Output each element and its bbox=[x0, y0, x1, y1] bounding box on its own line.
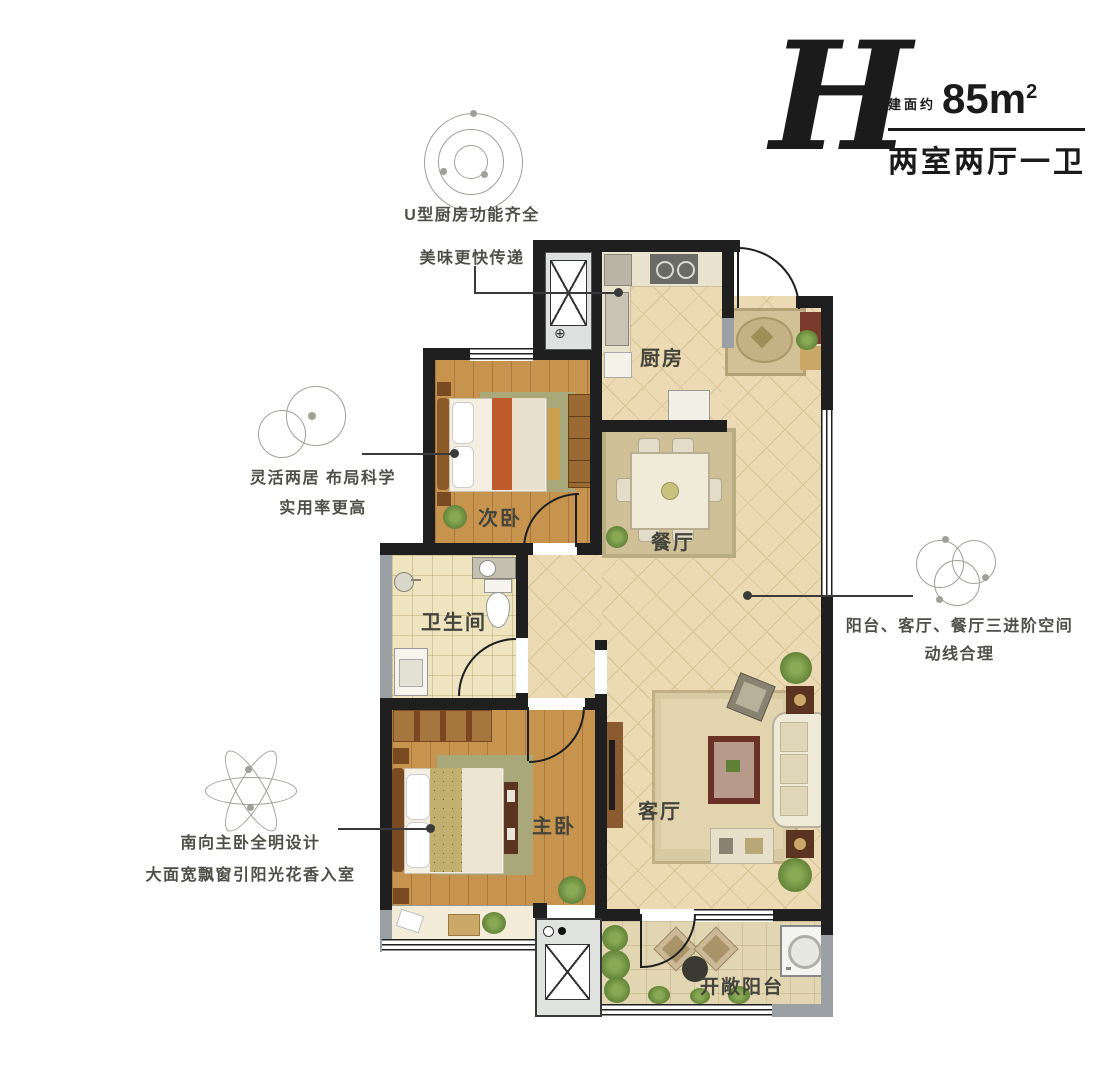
balcony-plant bbox=[600, 950, 630, 980]
layout-type: 两室两厅一卫 bbox=[888, 137, 1086, 181]
leader-line bbox=[338, 828, 434, 830]
annotation-flexible-line2: 实用率更高 bbox=[228, 498, 418, 520]
tv bbox=[609, 740, 615, 810]
master-plant bbox=[558, 876, 586, 904]
annotation-flow-line1: 阳台、客厅、餐厅三进阶空间 bbox=[842, 616, 1077, 638]
room-label-bathroom: 卫生间 bbox=[396, 606, 512, 635]
living-bench bbox=[710, 828, 774, 864]
washing-machine bbox=[394, 648, 428, 696]
leader-dot bbox=[614, 288, 623, 297]
room-label-second-bedroom: 次卧 bbox=[452, 502, 548, 531]
window bbox=[694, 909, 773, 922]
bed-runner bbox=[492, 398, 512, 490]
wall bbox=[821, 296, 833, 410]
annotation-flow: 阳台、客厅、餐厅三进阶空间 动线合理 bbox=[842, 616, 1077, 665]
room-label-dining: 餐厅 bbox=[628, 526, 718, 555]
room-label-master-bedroom: 主卧 bbox=[508, 810, 600, 839]
sofa-cushion bbox=[780, 754, 808, 784]
burner bbox=[656, 261, 674, 279]
motif-two-circles bbox=[258, 386, 353, 461]
room-label-kitchen: 厨房 bbox=[604, 342, 720, 371]
shaft-circle bbox=[543, 926, 554, 937]
sofa-cushion bbox=[780, 722, 808, 752]
side-table-deco bbox=[794, 838, 806, 850]
balcony-plant bbox=[602, 925, 628, 951]
washer-knob bbox=[786, 967, 791, 970]
leader-line bbox=[474, 292, 620, 294]
leader-line bbox=[749, 595, 913, 597]
annotation-flexible-line1: 灵活两居 布局科学 bbox=[228, 468, 418, 490]
annotation-flow-line2: 动线合理 bbox=[842, 644, 1077, 666]
wall-gray bbox=[772, 1004, 833, 1017]
annotation-master-line2: 大面宽飘窗引阳光花香入室 bbox=[138, 865, 363, 887]
compass-icon: ⊕ bbox=[554, 326, 566, 340]
bay-window-glass bbox=[382, 939, 538, 952]
living-plant bbox=[780, 652, 812, 684]
wall bbox=[516, 555, 528, 638]
window bbox=[821, 410, 834, 595]
dining-table bbox=[630, 452, 710, 530]
kitchen-sink bbox=[605, 292, 629, 346]
kitchen-appliance bbox=[604, 254, 632, 286]
bath-counter bbox=[472, 557, 516, 579]
wall bbox=[773, 909, 821, 921]
room-label-balcony: 开敞阳台 bbox=[692, 972, 792, 999]
title-divider bbox=[888, 128, 1085, 131]
nightstand bbox=[437, 382, 451, 396]
wall-gray bbox=[722, 318, 734, 348]
leader-line bbox=[474, 266, 476, 294]
area-value: 85m2 bbox=[942, 78, 1037, 120]
shower-head bbox=[394, 572, 414, 592]
annotation-kitchen: U型厨房功能齐全 美味更快传递 bbox=[362, 205, 582, 269]
annotation-master-line1: 南向主卧全明设计 bbox=[138, 833, 363, 855]
side-table bbox=[786, 830, 814, 858]
master-pillow bbox=[406, 774, 430, 820]
shower-arm bbox=[411, 579, 421, 581]
entry-door-arc bbox=[738, 247, 800, 309]
leader-line bbox=[362, 453, 456, 455]
master-blanket bbox=[462, 768, 502, 872]
bench-item bbox=[745, 838, 763, 854]
entry-rug bbox=[725, 308, 806, 376]
annotation-kitchen-line1: U型厨房功能齐全 bbox=[362, 205, 582, 227]
table-centerpiece bbox=[661, 482, 679, 500]
washer-drum bbox=[788, 935, 822, 969]
nightstand bbox=[393, 748, 409, 764]
wall bbox=[821, 595, 833, 935]
armchair-cushion bbox=[735, 681, 766, 712]
nightstand bbox=[393, 888, 409, 904]
wall bbox=[423, 348, 435, 555]
dining-plant bbox=[606, 526, 628, 548]
annotation-master: 南向主卧全明设计 大面宽飘窗引阳光花香入室 bbox=[138, 833, 363, 886]
side-table bbox=[786, 686, 814, 714]
balcony-plant bbox=[648, 986, 670, 1004]
bench-item bbox=[719, 838, 733, 854]
room-label-living-room: 客厅 bbox=[616, 795, 704, 824]
fridge bbox=[668, 390, 710, 422]
wall bbox=[590, 348, 602, 555]
leader-dot bbox=[450, 449, 459, 458]
wall bbox=[602, 420, 727, 432]
master-wardrobe bbox=[393, 710, 492, 742]
sofa bbox=[772, 712, 824, 828]
motif-orbits bbox=[424, 113, 524, 213]
bay-plant bbox=[482, 912, 506, 934]
window bbox=[470, 348, 533, 361]
washer-drum bbox=[399, 659, 423, 687]
wall-gray bbox=[380, 555, 392, 698]
balcony-plant bbox=[604, 977, 630, 1003]
bench-item bbox=[507, 790, 515, 802]
balcony-washer bbox=[780, 925, 826, 977]
master-headboard bbox=[392, 768, 404, 872]
wall bbox=[380, 698, 392, 910]
coffee-table bbox=[708, 736, 760, 804]
table-plant bbox=[726, 760, 740, 772]
burner bbox=[677, 261, 695, 279]
entry-plant bbox=[796, 330, 818, 350]
side-table-deco bbox=[794, 694, 806, 706]
sink bbox=[479, 560, 496, 577]
leader-dot bbox=[743, 591, 752, 600]
chair-cushion bbox=[702, 935, 730, 963]
bed-pillow bbox=[452, 402, 474, 444]
bay-tray bbox=[448, 914, 480, 936]
annotation-flexible: 灵活两居 布局科学 实用率更高 bbox=[228, 468, 418, 519]
balcony-railing bbox=[598, 1004, 772, 1017]
bed-headboard bbox=[437, 398, 449, 490]
wall bbox=[380, 698, 527, 710]
wall bbox=[533, 903, 547, 918]
wall bbox=[380, 543, 533, 555]
leader-dot bbox=[426, 824, 435, 833]
area-prefix-label: 建面约 bbox=[888, 94, 936, 120]
wall bbox=[380, 885, 392, 910]
stove bbox=[650, 254, 698, 284]
wall bbox=[722, 240, 734, 318]
utility-box bbox=[545, 944, 590, 1000]
wall bbox=[577, 543, 602, 555]
living-plant bbox=[778, 858, 812, 892]
sofa-cushion bbox=[780, 786, 808, 816]
wardrobe bbox=[568, 394, 592, 488]
wall-niche bbox=[595, 648, 607, 696]
foot-bench bbox=[548, 408, 560, 480]
annotation-kitchen-line2: 美味更快传递 bbox=[362, 248, 582, 270]
toilet-tank bbox=[484, 579, 512, 593]
master-floral-throw bbox=[430, 768, 462, 872]
hall-floor bbox=[528, 555, 602, 698]
shaft-dot bbox=[558, 927, 566, 935]
area-row: 建面约 85m2 bbox=[888, 78, 1037, 120]
area-sup: 2 bbox=[1026, 81, 1037, 103]
motif-atom bbox=[203, 760, 298, 820]
nightstand bbox=[437, 492, 451, 506]
motif-three-circles bbox=[912, 538, 1002, 608]
bed-blanket bbox=[512, 398, 545, 490]
